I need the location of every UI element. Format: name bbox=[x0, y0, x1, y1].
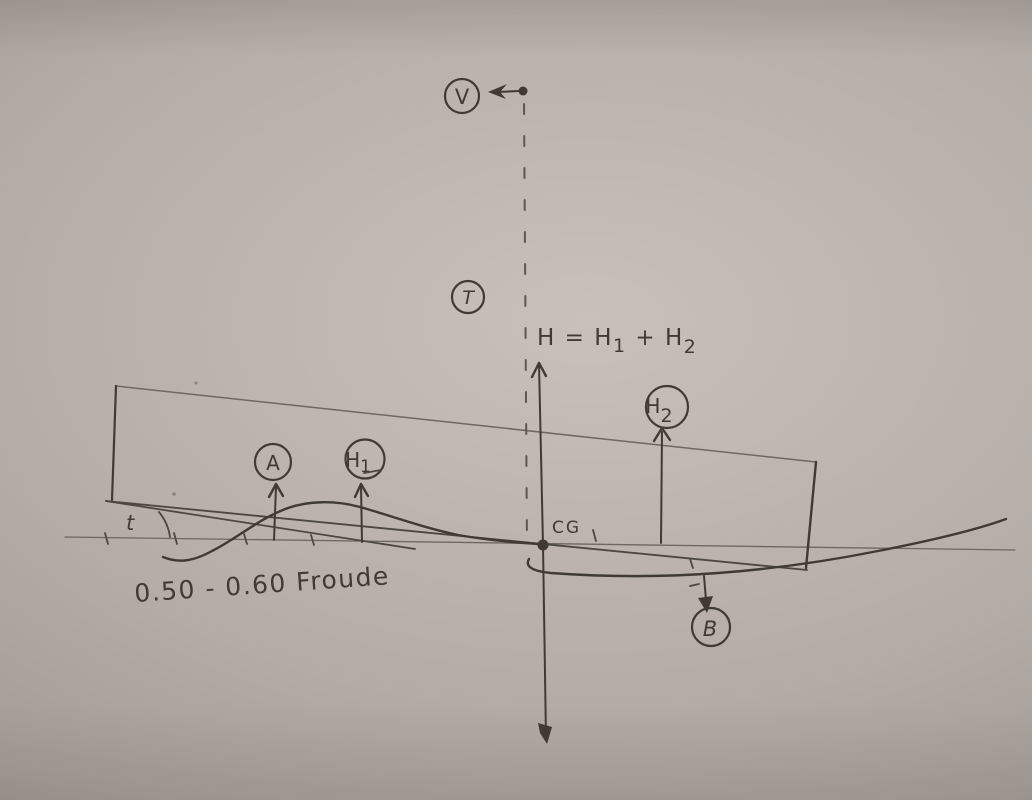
force-h2-letter: H bbox=[645, 394, 660, 418]
force-a-label: A bbox=[266, 451, 280, 475]
force-h2-label: H2 bbox=[645, 394, 672, 427]
force-h2-subscript: 2 bbox=[660, 405, 672, 427]
trim-angle-arc bbox=[159, 512, 170, 537]
tick-mark bbox=[593, 530, 596, 541]
force-h1-subscript: 1 bbox=[360, 457, 371, 477]
equation-subscript: 2 bbox=[684, 336, 698, 358]
keel-tick-mark bbox=[690, 559, 693, 568]
trim-line bbox=[106, 501, 415, 549]
hull-deck-line bbox=[116, 386, 816, 462]
dashed-centerline bbox=[524, 104, 527, 546]
cg-dot bbox=[538, 540, 549, 551]
paper-speck bbox=[172, 492, 175, 495]
velocity-label: V bbox=[455, 85, 470, 109]
force-h2-arrow-shaft bbox=[661, 432, 662, 543]
equation-part: + H bbox=[627, 325, 684, 351]
force-b-arrow-shaft bbox=[704, 576, 706, 600]
thrust-label: T bbox=[462, 287, 475, 309]
ship-trim-forces-diagram: V T H = H1 + H2 CG t A H1 H2 bbox=[0, 0, 1032, 800]
trim-angle-label: t bbox=[126, 511, 135, 535]
hull-bow-line bbox=[112, 386, 116, 500]
photographed-paper-sheet: V T H = H1 + H2 CG t A H1 H2 bbox=[0, 0, 1032, 800]
h-axis-line bbox=[539, 364, 546, 738]
minus-sign bbox=[690, 584, 699, 586]
bow-wave-curve bbox=[163, 502, 539, 560]
equation-subscript: 1 bbox=[613, 335, 627, 357]
tick-mark bbox=[105, 533, 108, 544]
waterline-tick-marks bbox=[105, 530, 693, 568]
equation-part: H = H bbox=[537, 325, 613, 351]
froude-annotation: 0.50 - 0.60 Froude bbox=[133, 561, 390, 608]
force-h1-letter: H bbox=[345, 448, 360, 472]
force-b-label: B bbox=[703, 617, 717, 641]
force-h1-arrow-shaft bbox=[361, 486, 362, 542]
stern-wave-trough-curve bbox=[528, 519, 1006, 576]
paper-speck bbox=[195, 382, 198, 385]
equation-text: H = H1 + H2 bbox=[537, 325, 697, 358]
hull-stern-line bbox=[806, 462, 816, 568]
cg-label: CG bbox=[552, 518, 581, 538]
h-axis-down-arrowhead bbox=[538, 723, 552, 744]
force-a-arrow-shaft bbox=[274, 487, 276, 540]
